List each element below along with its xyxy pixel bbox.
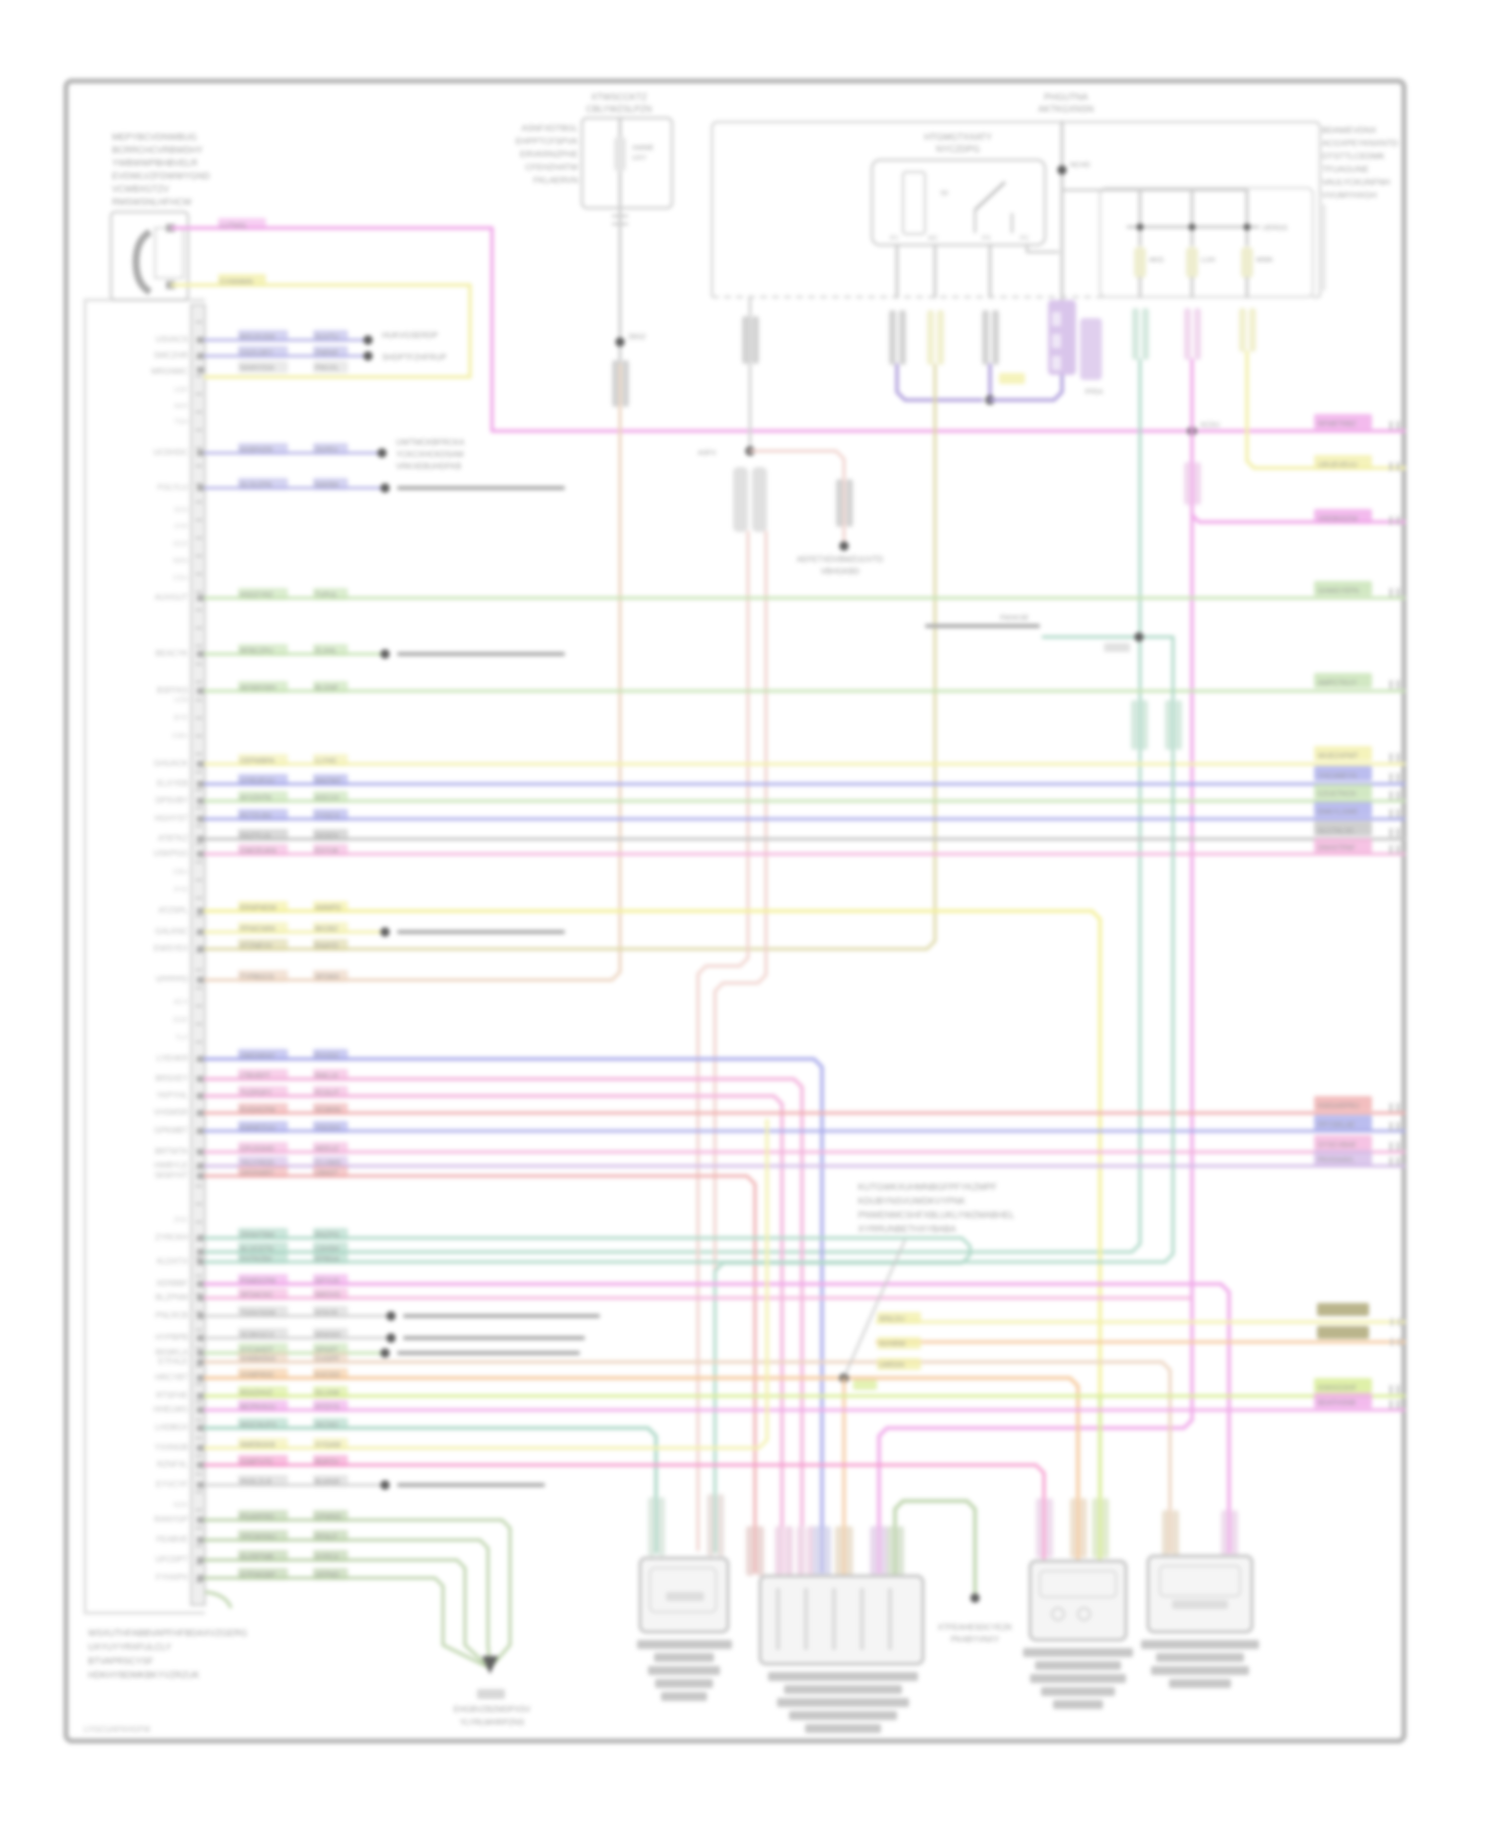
svg-text:UMGNRAY: UMGNRAY — [240, 1053, 276, 1060]
svg-text:RZNFXL: RZNFXL — [157, 1460, 189, 1469]
svg-text:KUTGWKXUHMNBGFPFYKZMPF: KUTGWKXUHMNBGFPFYKZMPF — [858, 1182, 998, 1192]
svg-text:PKRLZLR: PKRLZLR — [240, 1479, 272, 1486]
svg-text:GTFWGBP: GTFWGBP — [240, 1572, 276, 1579]
svg-text:BLGNF: BLGNF — [315, 685, 338, 692]
svg-text:SUVTU: SUVTU — [315, 334, 339, 341]
svg-text:LYGCUAFKHGFM: LYGCUAFKHGFM — [84, 1725, 150, 1734]
svg-text:XTFEAHESDCYEZK: XTFEAHESDCYEZK — [938, 1623, 1013, 1632]
svg-text:NMEBGKB: NMEBGKB — [240, 1442, 275, 1449]
svg-text:PNWENMCSHFXBLUKLYWZMABHEL: PNWENMCSHFXBLUKLYWZMABHEL — [858, 1210, 1014, 1220]
svg-text:VCMHN: VCMHN — [315, 1107, 341, 1114]
svg-text:YYGCX: YYGCX — [315, 813, 340, 820]
svg-text:CLUWG: CLUWG — [315, 1160, 341, 1167]
svg-text:MCPKHUU: MCPKHUU — [240, 1404, 275, 1411]
svg-text:GHMGYEPN: GHMGYEPN — [1318, 588, 1359, 595]
svg-text:WSXUTHFABBVAPFHFBDAXVZGERG: WSXUTHFABBVAPFHFBDAXVZGERG — [88, 1628, 247, 1638]
svg-text:GFYUS: GFYUS — [315, 1278, 339, 1285]
svg-text:SFDACKC: SFDACKC — [240, 1292, 273, 1299]
svg-text:PHGUTNA: PHGUTNA — [1044, 92, 1088, 102]
svg-text:VVMFRDC: VVMFRDC — [240, 1372, 275, 1379]
svg-text:ACX: ACX — [174, 999, 189, 1006]
svg-text:CGBTVTC: CGBTVTC — [240, 1459, 273, 1466]
svg-text:EAAYD: EAAYD — [315, 943, 338, 950]
svg-text:LHDBGX: LHDBGX — [155, 1423, 189, 1432]
svg-text:VAULYCKUNFNH: VAULYCKUNFNH — [1322, 177, 1390, 187]
svg-text:ASNFXDTBGL: ASNFXDTBGL — [521, 123, 578, 133]
svg-text:AMMPD: AMMPD — [315, 905, 341, 912]
svg-text:CZUCTKCK: CZUCTKCK — [1318, 791, 1356, 798]
svg-text:HUKVGSERDP: HUKVGSERDP — [382, 331, 438, 340]
svg-text:KWGARPRU: KWGARPRU — [1318, 1103, 1359, 1110]
svg-text:HYPBPB: HYPBPB — [156, 1333, 188, 1342]
svg-text:GALKNC: GALKNC — [155, 927, 188, 936]
svg-text:EVGHCFM: EVGHCFM — [240, 1107, 275, 1114]
svg-text:TGNVSGM: TGNVSGM — [240, 1310, 276, 1317]
svg-text:RDPZV: RDPZV — [315, 1459, 339, 1466]
svg-text:AYVZHTK: AYVZHTK — [240, 795, 272, 802]
svg-text:ASFX: ASFX — [698, 450, 717, 457]
svg-text:ERVKRNZPHE: ERVKRNZPHE — [520, 149, 578, 159]
svg-text:VRKXEBUHDFKB: VRKXEBUHDFKB — [396, 462, 461, 471]
svg-text:VHSMSR: VHSMSR — [154, 1108, 188, 1117]
svg-text:ERNPMDM: ERNPMDM — [240, 905, 276, 912]
svg-text:ZNEKE: ZNEKE — [315, 350, 339, 357]
svg-text:CFEHZHATW: CFEHZHATW — [525, 162, 578, 172]
svg-text:ETFALE: ETFALE — [158, 1357, 188, 1366]
svg-text:LUTMSL: LUTMSL — [220, 223, 248, 230]
svg-text:UXY: UXY — [632, 155, 647, 162]
svg-text:UFPND: UFPND — [315, 1572, 339, 1579]
svg-text:PSMDCFM: PSMDCFM — [240, 1278, 276, 1285]
svg-text:PKABYVNXY: PKABYVNXY — [951, 1635, 1000, 1644]
svg-text:YCKCXHCKDSAM: YCKCXHCKDSAM — [396, 450, 464, 459]
svg-text:XYGAM: XYGAM — [315, 1442, 340, 1449]
svg-text:NAKBA: NAKBA — [315, 482, 339, 489]
svg-text:WNLDU: WNLDU — [879, 1316, 905, 1323]
svg-text:BKDBZ: BKDBZ — [315, 926, 339, 933]
svg-text:SFDMX: SFDMX — [315, 974, 340, 981]
svg-text:FCGUT: FCGUT — [315, 1090, 340, 1097]
svg-text:FENLF: FENLF — [315, 1534, 337, 1541]
svg-text:NAMVSSA: NAMVSSA — [240, 365, 275, 372]
svg-text:GLEBTMB: GLEBTMB — [240, 1554, 274, 1561]
svg-text:TSH: TSH — [174, 419, 188, 426]
svg-text:PKHXAAVL: PKHXAAVL — [1318, 1157, 1355, 1164]
svg-text:PPYSRLAE: PPYSRLAE — [1318, 1122, 1355, 1129]
svg-text:DTSTTLCEDMK: DTSTTLCEDMK — [1322, 151, 1385, 161]
svg-text:HHELWG: HHELWG — [153, 1405, 188, 1414]
svg-text:BEACYK: BEACYK — [156, 649, 189, 658]
svg-text:GHUACK: GHUACK — [154, 759, 189, 768]
svg-text:UFCDPT: UFCDPT — [156, 1555, 189, 1564]
svg-text:FKLAERVN: FKLAERVN — [533, 175, 578, 185]
svg-text:UYRUEUU: UYRUEUU — [240, 778, 275, 785]
svg-text:KNKKGSHF: KNKKGSHF — [1318, 1385, 1357, 1392]
svg-text:XTZNEVV: XTZNEVV — [240, 943, 273, 950]
svg-text:EHGBVZBZMDPXSV: EHGBVZBZMDPXSV — [454, 1705, 532, 1714]
svg-text:USVACS: USVACS — [156, 335, 188, 344]
svg-text:AUVGUT: AUVGUT — [155, 593, 188, 602]
svg-text:ZKPEV: ZKPEV — [315, 447, 338, 454]
svg-text:KLDXTX: KLDXTX — [157, 1257, 189, 1266]
svg-text:AAX: AAX — [174, 403, 188, 410]
svg-text:BTVAPRSCYSF: BTVAPRSCYSF — [88, 1656, 154, 1666]
svg-text:FYHXPX: FYHXPX — [156, 1573, 189, 1582]
svg-text:FTP: FTP — [175, 524, 189, 531]
svg-text:PNLRCB: PNLRCB — [156, 1311, 188, 1320]
svg-text:GPKMBT: GPKMBT — [154, 1126, 188, 1135]
svg-text:ACGXPEYKNXNTD: ACGXPEYKNXNTD — [1322, 138, 1398, 148]
svg-text:YXXNGB: YXXNGB — [155, 1443, 188, 1452]
svg-text:CGZLDEY: CGZLDEY — [240, 350, 273, 357]
svg-text:MRGNMC: MRGNMC — [151, 367, 188, 376]
svg-text:SKMYHT: SKMYHT — [155, 1171, 188, 1180]
svg-text:WMK: WMK — [1256, 257, 1273, 264]
svg-text:YKUYRDD: YKUYRDD — [240, 1160, 274, 1167]
svg-text:URUEVEUU: URUEVEUU — [1318, 462, 1357, 469]
svg-text:LUH: LUH — [1201, 257, 1215, 264]
svg-text:RFMETRBZ: RFMETRBZ — [1318, 421, 1357, 428]
svg-text:HEEUZ: HEEUZ — [315, 1146, 339, 1153]
svg-text:CSU: CSU — [173, 575, 188, 582]
svg-text:CPWNS: CPWNS — [315, 1514, 341, 1521]
svg-text:RANYGP: RANYGP — [154, 1515, 188, 1524]
svg-text:BCRRCHCVRBWDHY: BCRRCHCVRBWDHY — [112, 145, 203, 155]
svg-text:BLZPNM: BLZPNM — [156, 1293, 189, 1302]
svg-text:HTGMGTXXATY: HTGMGTXXATY — [924, 132, 992, 142]
svg-text:RMLLK: RMLLK — [315, 1073, 339, 1080]
svg-text:NVHRW: NVHRW — [879, 1341, 906, 1348]
svg-text:LLYHC: LLYHC — [315, 758, 337, 765]
svg-text:FGLYLU: FGLYLU — [157, 483, 188, 492]
svg-text:VPPPPD: VPPPPD — [156, 975, 189, 984]
svg-text:PGARFRD: PGARFRD — [240, 1514, 274, 1521]
svg-text:CUGPF: CUGPF — [315, 1356, 340, 1363]
svg-text:CBU: CBU — [173, 869, 188, 876]
svg-text:CMU: CMU — [172, 733, 188, 740]
svg-text:NRN: NRN — [173, 558, 188, 565]
svg-text:XERBBF: XERBBF — [156, 1279, 188, 1288]
svg-text:WUEZXPMT: WUEZXPMT — [1318, 753, 1359, 760]
svg-text:ZBSZ: ZBSZ — [628, 334, 647, 341]
svg-text:BDATHSNB: BDATHSNB — [1318, 1400, 1356, 1407]
svg-text:ELXYEB: ELXYEB — [157, 779, 188, 788]
svg-text:UXYUYYRXFULCLY: UXYUYYRXFULCLY — [88, 1642, 171, 1652]
svg-text:LWEGN: LWEGN — [879, 1362, 904, 1369]
svg-text:AKNMVMH: AKNMVMH — [240, 685, 276, 692]
svg-text:YHCABEYN: YHCABEYN — [1318, 773, 1357, 780]
svg-text:RNZPG: RNZPG — [315, 1232, 340, 1239]
svg-text:BYE: BYE — [174, 715, 188, 722]
svg-text:ALUCGTG: ALUCGTG — [240, 1246, 274, 1253]
svg-text:NTAYR: NTAYR — [315, 1310, 338, 1317]
svg-text:GLSUZFK: GLSUZFK — [240, 482, 273, 489]
svg-text:VREBNSZW: VREBNSZW — [1318, 516, 1358, 523]
svg-text:BRTWTA: BRTWTA — [155, 1147, 189, 1156]
svg-text:PS: PS — [982, 235, 991, 242]
svg-text:USKPGG: USKPGG — [154, 849, 188, 858]
svg-text:DGZTLUL: DGZTLUL — [240, 833, 272, 840]
svg-text:CPUSSHD: CPUSSHD — [240, 1146, 274, 1153]
svg-text:CWCEUKN: CWCEUKN — [240, 848, 276, 855]
svg-text:VCWBXGTZV: VCWBXGTZV — [112, 184, 169, 194]
svg-text:XWME: XWME — [632, 145, 654, 152]
svg-text:SSSDV: SSSDV — [315, 833, 339, 840]
svg-text:EVDWLVZFDWWYGND: EVDWLVZFDWWYGND — [112, 171, 210, 181]
svg-text:ZRNHTBM: ZRNHTBM — [240, 1232, 274, 1239]
svg-text:CEPWBPA: CEPWBPA — [240, 758, 275, 765]
svg-text:EXYUK: EXYUK — [315, 848, 339, 855]
svg-text:SMCZHR: SMCZHR — [154, 351, 188, 360]
svg-text:HDKHYBDMKBKYVZRZUK: HDKHYBDMKBKYVZRZUK — [88, 1670, 200, 1680]
svg-text:HSDZYRZ: HSDZYRZ — [240, 592, 274, 599]
svg-text:USF: USF — [174, 387, 188, 394]
svg-text:RY: RY — [890, 235, 900, 242]
svg-text:EYVCYF: EYVCYF — [156, 1480, 188, 1489]
svg-text:ATBTKZ: ATBTKZ — [158, 834, 188, 843]
svg-text:CVWMMN: CVWMMN — [220, 279, 253, 286]
svg-text:PC: PC — [1020, 235, 1029, 242]
svg-text:DCE: DCE — [173, 541, 188, 548]
svg-text:KDUBYNSVUWDKVYPNK: KDUBYNSVUWDKVYPNK — [858, 1196, 966, 1206]
svg-text:ZHC: ZHC — [174, 1217, 188, 1224]
svg-text:ASCUV: ASCUV — [315, 795, 339, 802]
svg-text:VBHGKBD: VBHGKBD — [820, 567, 859, 576]
svg-text:UHVHARY: UHVHARY — [240, 1170, 274, 1177]
svg-text:AEFETXDVBMZUUVTD: AEFETXDVBMZUUVTD — [797, 555, 884, 564]
svg-text:TVPUL: TVPUL — [315, 592, 338, 599]
svg-text:TLF: TLF — [176, 1035, 188, 1042]
svg-text:XYPCX: XYPCX — [315, 1554, 339, 1561]
svg-text:YWBWWPBHBVELR: YWBWWPBHBVELR — [112, 158, 198, 168]
svg-text:LYEHKR: LYEHKR — [157, 1054, 189, 1063]
svg-text:TYPBGCG: TYPBGCG — [240, 974, 274, 981]
svg-text:NCHD: NCHD — [1070, 162, 1090, 169]
svg-text:HRCYBT: HRCYBT — [155, 1373, 188, 1382]
svg-text:XHMMSNX: XHMMSNX — [240, 1356, 276, 1363]
svg-text:YPCWXNU: YPCWXNU — [240, 1534, 276, 1541]
svg-text:UCDHDC: UCDHDC — [153, 448, 188, 457]
svg-text:SHDPTFZHFRUP: SHDPTFZHFRUP — [382, 353, 446, 362]
svg-text:XCDU: XCDU — [1200, 422, 1220, 429]
svg-text:AKG: AKG — [1149, 257, 1164, 264]
svg-text:DPSVBY: DPSVBY — [156, 796, 189, 805]
svg-text:SCBKGCX: SCBKGCX — [240, 1332, 275, 1339]
svg-text:SXS: SXS — [174, 507, 188, 514]
svg-text:XTWSCCKTZ: XTWSCCKTZ — [591, 92, 647, 102]
svg-text:NXK: NXK — [174, 1502, 189, 1509]
svg-text:TF: TF — [940, 191, 949, 198]
svg-text:UZB: UZB — [174, 697, 188, 704]
svg-text:MC: MC — [928, 235, 938, 242]
svg-text:BRSXEY: BRSXEY — [156, 1074, 189, 1083]
svg-text:PMUXL: PMUXL — [315, 365, 339, 372]
svg-text:VVUMYHXGH: VVUMYHXGH — [1322, 190, 1377, 200]
svg-text:FFEA: FFEA — [1085, 389, 1103, 396]
svg-text:ZYRCKH: ZYRCKH — [155, 1233, 188, 1242]
svg-text:FHTRZBX: FHTRZBX — [240, 1256, 273, 1263]
svg-text:PVVGC: PVVGC — [315, 1053, 340, 1060]
svg-text:HWBYLE: HWBYLE — [154, 1161, 188, 1170]
svg-text:KXCGD: KXCGD — [315, 1372, 340, 1379]
svg-text:BKMKLA: BKMKLA — [156, 1348, 189, 1357]
svg-text:UWTMCKBFRCKA: UWTMCKBFRCKA — [396, 438, 465, 447]
svg-text:UERGG: UERGG — [1262, 225, 1288, 232]
svg-text:DLLKW: DLLKW — [315, 1390, 340, 1397]
svg-text:MXUXUGK: MXUXUGK — [240, 334, 276, 341]
svg-text:HGHYST: HGHYST — [155, 814, 188, 823]
svg-text:BSFFKS: BSFFKS — [157, 686, 188, 695]
svg-text:ZLXHL: ZLXHL — [315, 648, 337, 655]
svg-text:ATZSPL: ATZSPL — [158, 906, 188, 915]
svg-text:TFUAGUNE: TFUAGUNE — [1322, 164, 1369, 174]
svg-text:DGE: DGE — [173, 1017, 189, 1024]
svg-text:PPWCNRK: PPWCNRK — [240, 926, 276, 933]
svg-text:RTSFHE: RTSFHE — [156, 1391, 188, 1400]
svg-text:WAZWZ: WAZWZ — [315, 778, 342, 785]
svg-text:DYSCVBAE: DYSCVBAE — [1318, 1142, 1356, 1149]
svg-text:PYE: PYE — [174, 887, 188, 894]
svg-text:AMPCTKUY: AMPCTKUY — [1318, 680, 1357, 687]
svg-text:EMKYLXWE: EMKYLXWE — [1318, 809, 1358, 816]
svg-text:CBLYWZSLPZN: CBLYWZSLPZN — [586, 104, 652, 114]
svg-text:NRDVG: NRDVG — [315, 1292, 340, 1299]
svg-text:MEPYBCVDNWBUG: MEPYBCVDNWBUG — [112, 132, 197, 142]
svg-text:YKPYHL: YKPYHL — [156, 1091, 188, 1100]
svg-text:EHPPTCFSPVK: EHPPTCFSPVK — [516, 136, 579, 146]
svg-text:TVZPDFY: TVZPDFY — [240, 1090, 272, 1097]
svg-text:LBAGT: LBAGT — [315, 1170, 339, 1177]
svg-text:EWSYEX: EWSYEX — [154, 944, 189, 953]
svg-text:MNKMX: MNKMX — [315, 1332, 341, 1339]
svg-text:BDAWEVDNX: BDAWEVDNX — [1322, 125, 1377, 135]
svg-text:LTBVEFT: LTBVEFT — [240, 1073, 271, 1080]
svg-text:BLWNR: BLWNR — [315, 1479, 340, 1486]
svg-text:EPBGA: EPBGA — [315, 1256, 339, 1263]
svg-text:YGCKH: YGCKH — [315, 1125, 340, 1132]
svg-text:XYRRUNBETHXYBABA: XYRRUNBETHXYBABA — [858, 1224, 956, 1234]
svg-text:LGHSH: LGHSH — [315, 1246, 339, 1253]
svg-text:PCTZLBX: PCTZLBX — [240, 813, 272, 820]
svg-text:XKZAD: XKZAD — [315, 1422, 338, 1429]
svg-text:WGCNUFS: WGCNUFS — [240, 1422, 276, 1429]
svg-text:RMSWSNLHFHCW: RMSWSNLHFHCW — [112, 197, 192, 207]
svg-text:KWNEZUU: KWNEZUU — [240, 1125, 275, 1132]
svg-text:RFBCZPU: RFBCZPU — [240, 648, 273, 655]
svg-text:FEABVE: FEABVE — [156, 1535, 188, 1544]
svg-text:AKTKGXNSN: AKTKGXNSN — [1038, 104, 1094, 114]
svg-text:NYCZDPG: NYCZDPG — [936, 144, 980, 154]
svg-text:GLCTALSC: GLCTALSC — [1318, 828, 1354, 835]
svg-text:YLYRLWHRPZNS: YLYRLWHRPZNS — [460, 1718, 525, 1727]
svg-text:RSXZHVZ: RSXZHVZ — [240, 1390, 273, 1397]
svg-text:HYDYS: HYDYS — [315, 1404, 339, 1411]
svg-text:DNHXTPAF: DNHXTPAF — [1318, 845, 1355, 852]
svg-text:KKBFKER: KKBFKER — [240, 447, 273, 454]
svg-text:FMXKSE: FMXKSE — [1000, 615, 1029, 622]
